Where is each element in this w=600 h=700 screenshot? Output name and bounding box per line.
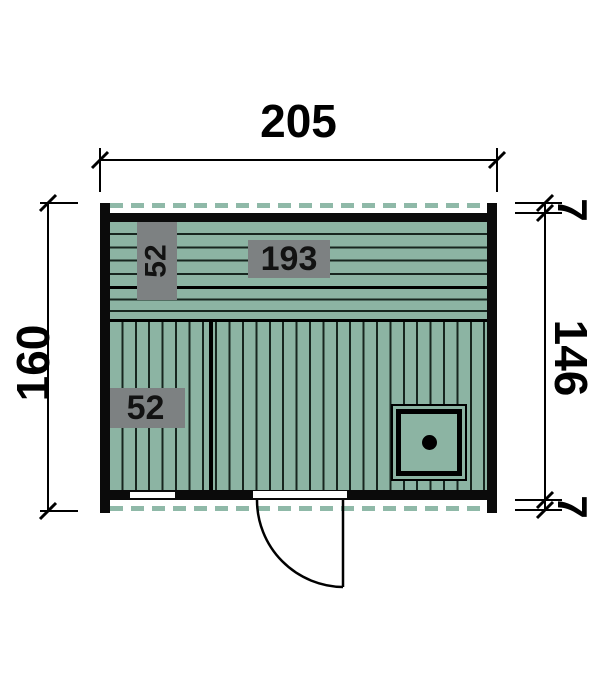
dimension-overhang-top-label: 7: [554, 190, 590, 230]
dimension-width-label: 205: [100, 96, 497, 146]
door-swing-arc: [257, 500, 343, 587]
bench-depth-tag: 52: [137, 222, 177, 300]
dimension-height-left-label: 160: [8, 303, 58, 423]
floor-plan-canvas: 205 160 146 7 7 52 193 52: [0, 0, 600, 700]
dimension-overhang-bottom-label: 7: [554, 487, 590, 527]
door-swing: [257, 500, 343, 587]
bench-depth-tag-text: 52: [140, 244, 174, 277]
stove-inner-frame: [396, 409, 462, 476]
floor-section-tag: 52: [106, 388, 185, 428]
wall-right: [487, 203, 497, 513]
roof-overhang-dashed-top: [110, 203, 487, 208]
roof-overhang-dashed-bottom: [110, 506, 487, 511]
stove: [391, 404, 467, 481]
wall-left: [100, 203, 110, 513]
top-dimension-line: [92, 148, 505, 192]
window-opening: [130, 492, 175, 498]
bench-length-tag: 193: [248, 240, 330, 278]
floor-section-tag-text: 52: [127, 389, 165, 428]
wall-top: [100, 213, 497, 222]
floor-divider-line: [209, 322, 213, 490]
stove-center-dot: [422, 435, 437, 450]
dimension-height-right-label: 146: [546, 298, 596, 418]
bench-length-tag-text: 193: [261, 240, 318, 279]
door-opening: [253, 491, 347, 498]
